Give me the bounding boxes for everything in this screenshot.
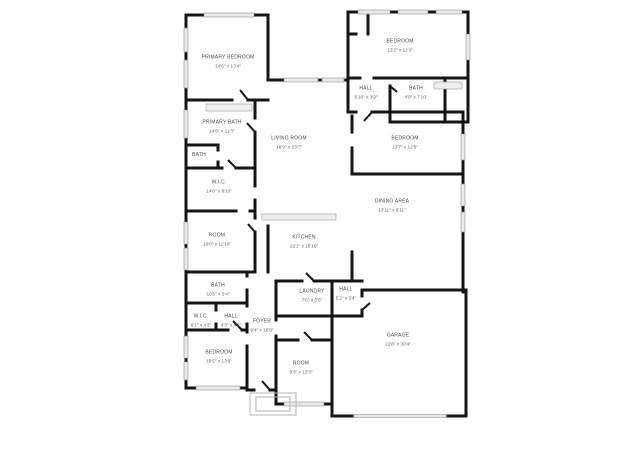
room-name: PRIMARY BEDROOM	[202, 54, 255, 62]
room-name: BEDROOM	[386, 38, 413, 46]
room-dims: 6'1" x 4'2"	[191, 321, 212, 328]
room-label-foyer: FOYER 9'4" x 18'9"	[250, 318, 273, 333]
room-name: ROOM	[289, 360, 312, 368]
room-dims: 7'6" x 5'6"	[299, 296, 324, 303]
room-label-room-bottom: ROOM 9'3" x 12'3"	[289, 360, 312, 375]
room-dims: 14'6" x 11'3"	[202, 127, 241, 134]
room-label-hall-bottom: HALL 5'2" x 5'4"	[336, 286, 357, 301]
room-label-bedroom-top-right: BEDROOM 13'2" x 11'3"	[386, 38, 413, 53]
room-label-garage: GARAGE 22'8" x 30'4"	[385, 332, 411, 347]
room-label-living-room: LIVING ROOM 18'9" x 23'7"	[271, 135, 307, 150]
fixtures	[206, 82, 462, 220]
room-dims: 6'10" x 3'9"	[354, 93, 377, 100]
room-label-bedroom-right: BEDROOM 13'7" x 12'5"	[391, 135, 418, 150]
room-dims: 9'4" x 18'9"	[250, 326, 273, 333]
room-dims: 10'5" x 5'4"	[206, 290, 229, 297]
room-name: LIVING ROOM	[271, 135, 307, 143]
floor-plan-drawing	[0, 0, 640, 460]
room-label-wic-bottom: W.I.C. 6'1" x 4'2"	[191, 313, 212, 328]
room-name: HALL	[354, 85, 377, 93]
room-dims: 10'8" x 11'10"	[203, 240, 231, 247]
room-dims: 14'6" x 8'10"	[206, 187, 232, 194]
room-name: HALL	[221, 313, 242, 321]
room-label-hall-bottom-left: HALL 4'3" x 4'2"	[221, 313, 242, 328]
room-name: W.I.C.	[206, 179, 232, 187]
room-label-dining-area: DINING AREA 13'11" x 9'11"	[375, 198, 409, 213]
room-dims: 22'1" x 15'10"	[290, 242, 318, 249]
kitchen-counter	[262, 214, 336, 220]
room-label-laundry: LAUNDRY 7'6" x 5'6"	[299, 288, 324, 303]
room-dims: 22'8" x 30'4"	[385, 340, 411, 347]
room-name: BATH	[404, 85, 427, 93]
garage-door	[354, 415, 446, 418]
room-label-kitchen: KITCHEN 22'1" x 15'10"	[290, 234, 318, 249]
vanity-counter	[206, 104, 252, 111]
room-label-primary-bedroom: PRIMARY BEDROOM 14'6" x 13'4"	[202, 54, 255, 69]
room-label-primary-bath: PRIMARY BATH 14'6" x 11'3"	[202, 119, 241, 134]
room-name: HALL	[336, 286, 357, 294]
room-dims: 18'9" x 23'7"	[271, 143, 307, 150]
floor-plan: PRIMARY BEDROOM 14'6" x 13'4" BEDROOM 13…	[0, 0, 640, 460]
room-dims: 13'11" x 9'11"	[375, 206, 409, 213]
room-label-bedroom-bottom-left: BEDROOM 16'5" x 13'9"	[205, 349, 232, 364]
room-name: GARAGE	[385, 332, 411, 340]
room-label-hall-top-right: HALL 6'10" x 3'9"	[354, 85, 377, 100]
room-name: BEDROOM	[391, 135, 418, 143]
bathtub	[434, 82, 462, 89]
room-name: FOYER	[250, 318, 273, 326]
room-dims: 16'5" x 13'9"	[205, 357, 232, 364]
room-dims: 14'6" x 13'4"	[202, 62, 255, 69]
room-name: ROOM	[203, 232, 231, 240]
room-dims: 13'2" x 11'3"	[386, 46, 413, 53]
room-name: BEDROOM	[205, 349, 232, 357]
room-name: PRIMARY BATH	[202, 119, 241, 127]
room-name: BATH	[192, 152, 206, 160]
room-dims: 9'3" x 12'3"	[289, 368, 312, 375]
room-dims: 5'2" x 5'4"	[336, 294, 357, 301]
room-label-room-left: ROOM 10'8" x 11'10"	[203, 232, 231, 247]
room-name: W.I.C.	[191, 313, 212, 321]
room-label-bath-lower-left: BATH 10'5" x 5'4"	[206, 282, 229, 297]
room-dims: 13'7" x 12'5"	[391, 143, 418, 150]
room-name: BATH	[206, 282, 229, 290]
room-name: LAUNDRY	[299, 288, 324, 296]
room-dims: 4'3" x 4'2"	[221, 321, 242, 328]
room-label-bath-left-small: BATH	[192, 152, 206, 160]
room-name: KITCHEN	[290, 234, 318, 242]
room-label-wic-left: W.I.C. 14'6" x 8'10"	[206, 179, 232, 194]
room-dims: 4'9" x 7'10"	[404, 93, 427, 100]
room-name: DINING AREA	[375, 198, 409, 206]
room-label-bath-top-right: BATH 4'9" x 7'10"	[404, 85, 427, 100]
